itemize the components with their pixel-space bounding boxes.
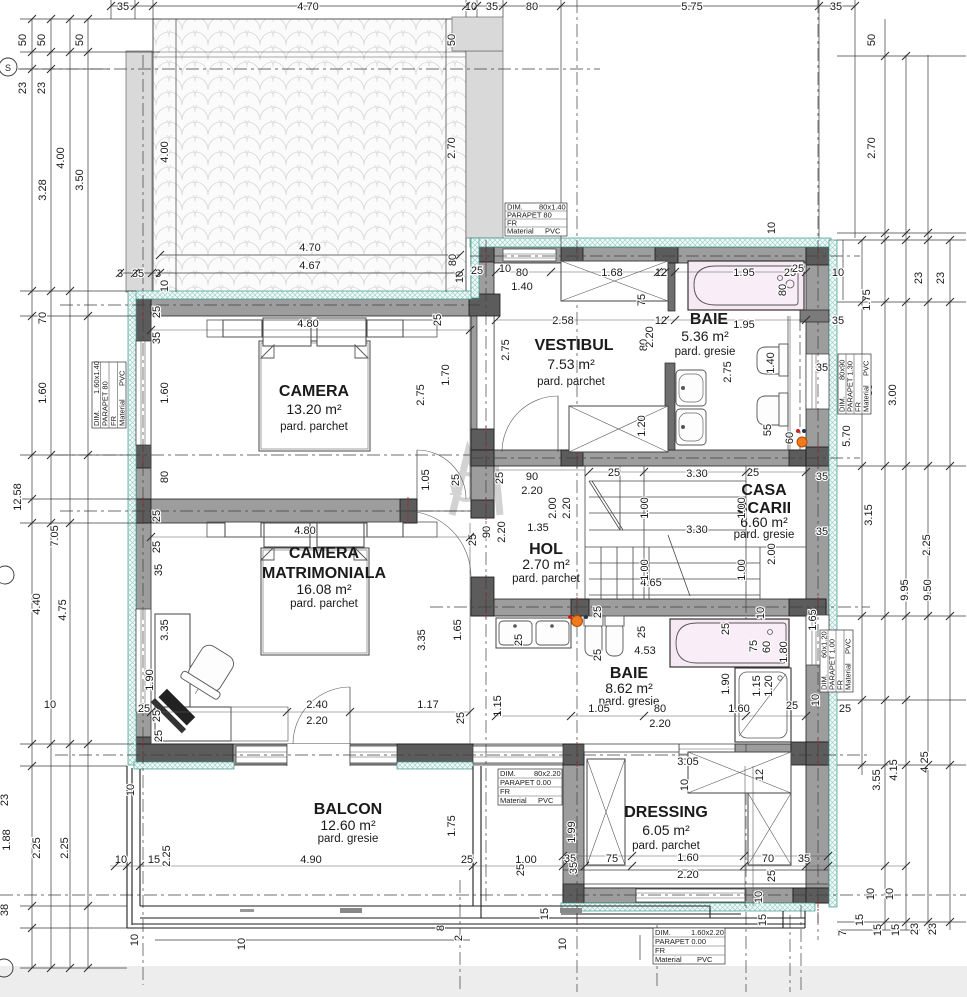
svg-text:PARAPET 0.00: PARAPET 0.00 [655,937,706,946]
svg-text:25: 25 [432,314,444,326]
svg-text:4.67: 4.67 [299,260,320,272]
svg-text:1.35: 1.35 [527,522,548,534]
svg-text:PARAPET 0.00: PARAPET 0.00 [500,778,551,787]
svg-text:Material: Material [507,227,534,236]
svg-text:2: 2 [453,935,465,941]
svg-text:3.05: 3.05 [677,756,698,768]
svg-text:12.60 m²: 12.60 m² [320,817,376,833]
svg-text:1.75: 1.75 [861,289,873,310]
svg-text:15: 15 [872,924,884,936]
svg-text:70: 70 [37,312,49,324]
svg-text:10: 10 [159,280,171,292]
svg-text:S: S [5,63,11,73]
svg-text:3.30: 3.30 [686,468,707,480]
svg-text:23: 23 [935,272,947,284]
svg-text:35: 35 [816,526,828,538]
svg-text:3.55: 3.55 [871,769,883,790]
svg-text:2.40: 2.40 [306,699,327,711]
svg-text:3.50: 3.50 [74,169,86,190]
svg-text:BAIE: BAIE [690,311,729,328]
svg-text:Material: Material [500,796,527,805]
svg-text:12: 12 [655,315,667,327]
svg-text:5.36 m²: 5.36 m² [681,328,729,344]
svg-text:25: 25 [151,541,163,553]
svg-text:10: 10 [810,694,822,706]
svg-text:23: 23 [909,923,921,935]
svg-text:2.20: 2.20 [306,715,327,727]
svg-text:BALCON: BALCON [314,801,382,818]
svg-text:8.62 m²: 8.62 m² [605,680,653,696]
svg-text:25: 25 [467,534,479,546]
svg-text:23: 23 [0,794,11,806]
svg-text:9.50: 9.50 [922,579,934,600]
svg-text:5.70: 5.70 [841,425,853,446]
svg-text:50: 50 [36,34,48,46]
svg-text:50: 50 [446,34,458,46]
svg-text:3: 3 [117,268,123,280]
svg-text:10: 10 [44,699,56,711]
svg-text:25: 25 [138,703,150,715]
svg-text:1.70: 1.70 [440,364,452,385]
svg-text:Material: Material [844,663,853,690]
svg-text:35: 35 [486,1,498,13]
svg-text:pard. parchet: pard. parchet [632,840,701,852]
svg-text:CAMERA: CAMERA [289,545,360,562]
svg-text:2.20: 2.20 [644,326,656,347]
svg-text:pard. gresie: pard. gresie [675,346,736,358]
svg-text:75: 75 [748,640,760,652]
svg-text:pard. parchet: pard. parchet [512,573,581,585]
svg-text:1.75: 1.75 [446,815,458,836]
svg-text:10: 10 [884,888,896,900]
svg-text:2.70 m²: 2.70 m² [522,556,570,572]
svg-text:7.53 m²: 7.53 m² [547,356,595,372]
svg-text:7.05: 7.05 [49,525,61,546]
svg-text:7: 7 [837,930,849,936]
svg-text:4.00: 4.00 [159,141,171,162]
svg-text:4.15: 4.15 [888,759,900,780]
svg-text:25: 25 [151,306,163,318]
svg-text:35: 35 [117,1,129,13]
svg-text:FR: FR [500,787,511,796]
svg-text:pard. gresie: pard. gresie [734,529,795,541]
svg-text:10: 10 [499,263,511,275]
svg-text:1.80: 1.80 [778,641,790,662]
svg-text:10: 10 [129,934,141,946]
svg-text:80: 80 [159,471,171,483]
svg-text:1.40: 1.40 [511,281,532,293]
svg-text:35: 35 [151,332,163,344]
svg-text:2.25: 2.25 [31,837,43,858]
svg-text:25: 25 [766,870,778,882]
svg-text:15: 15 [539,908,551,920]
svg-text:2.00: 2.00 [766,543,778,564]
svg-text:80x2.20: 80x2.20 [534,769,561,778]
svg-text:pard. parchet: pard. parchet [290,598,359,610]
svg-text:1.65: 1.65 [452,619,464,640]
svg-text:pard. parchet: pard. parchet [537,376,606,388]
svg-text:25: 25 [592,606,604,618]
svg-text:10: 10 [753,891,765,903]
svg-text:70: 70 [762,853,774,865]
svg-text:35: 35 [816,362,828,374]
svg-text:90: 90 [481,526,493,538]
svg-text:Material: Material [862,385,871,412]
svg-text:25: 25 [450,474,462,486]
svg-text:PVC: PVC [538,796,554,805]
svg-text:1.15: 1.15 [751,675,763,696]
svg-text:2.70: 2.70 [446,137,458,158]
svg-text:10: 10 [832,267,844,279]
svg-text:10: 10 [679,779,691,791]
svg-text:2.20: 2.20 [649,718,670,730]
svg-text:25: 25 [455,712,467,724]
svg-text:3.00: 3.00 [887,384,899,405]
svg-text:4.80: 4.80 [297,318,318,330]
svg-text:3.15: 3.15 [863,504,875,525]
svg-text:15: 15 [890,924,902,936]
svg-text:DIM.: DIM. [655,928,671,937]
svg-text:1.17: 1.17 [417,699,438,711]
svg-text:23: 23 [36,82,48,94]
svg-text:23: 23 [913,272,925,284]
svg-text:80: 80 [526,1,538,13]
svg-text:38: 38 [0,904,11,916]
svg-text:1.00: 1.00 [639,497,651,518]
svg-text:4.00: 4.00 [55,147,67,168]
svg-text:5.75: 5.75 [681,1,702,13]
svg-text:1.65: 1.65 [807,609,819,630]
svg-text:2.58: 2.58 [552,315,573,327]
svg-text:80: 80 [516,267,528,279]
svg-text:25: 25 [786,700,798,712]
svg-text:pard. parchet: pard. parchet [280,421,349,433]
svg-text:25: 25 [839,703,851,715]
svg-text:10: 10 [236,938,248,950]
svg-text:Material: Material [655,955,682,964]
svg-text:10: 10 [465,1,477,13]
svg-text:4.25: 4.25 [919,751,931,772]
svg-text:6.05 m²: 6.05 m² [642,822,690,838]
svg-text:35: 35 [568,862,580,874]
svg-text:90: 90 [526,471,538,483]
svg-text:80: 80 [777,284,789,296]
svg-text:3.35: 3.35 [159,619,171,640]
svg-text:35: 35 [830,1,842,13]
svg-text:10: 10 [557,938,569,950]
svg-text:VESTIBUL: VESTIBUL [534,337,613,354]
svg-text:2.25: 2.25 [161,845,173,866]
svg-text:60: 60 [784,432,796,444]
svg-text:1.05: 1.05 [588,703,609,715]
svg-text:1.95: 1.95 [733,319,754,331]
svg-text:1.00: 1.00 [639,559,651,580]
svg-text:1.20: 1.20 [636,415,648,436]
svg-text:25: 25 [151,710,163,722]
svg-text:1.00: 1.00 [736,559,748,580]
svg-text:4.53: 4.53 [634,645,655,657]
svg-text:1.05: 1.05 [420,469,432,490]
svg-text:25: 25 [636,626,648,638]
svg-text:2.20: 2.20 [521,485,542,497]
svg-text:16.08 m²: 16.08 m² [296,581,352,597]
svg-text:25: 25 [720,623,732,635]
svg-text:PVC: PVC [844,638,853,654]
svg-text:10: 10 [865,888,877,900]
svg-text:4.70: 4.70 [299,242,320,254]
svg-text:10: 10 [766,222,778,234]
svg-text:75: 75 [636,294,648,306]
svg-text:1.68: 1.68 [601,267,622,279]
svg-text:PVC: PVC [118,370,127,386]
svg-text:25: 25 [471,265,483,277]
svg-text:60: 60 [761,641,773,653]
svg-text:Material: Material [118,399,127,426]
svg-text:MATRIMONIALA: MATRIMONIALA [262,565,387,582]
svg-text:50: 50 [74,34,86,46]
svg-text:2.20: 2.20 [677,869,698,881]
svg-text:1.60x2.20: 1.60x2.20 [691,928,724,937]
svg-text:15: 15 [854,914,866,926]
svg-text:1.60: 1.60 [677,852,698,864]
svg-text:2.75: 2.75 [500,339,512,360]
svg-text:2.75: 2.75 [722,361,734,382]
svg-text:3.35: 3.35 [416,629,428,650]
svg-text:DRESSING: DRESSING [624,804,708,821]
svg-text:12: 12 [754,769,766,781]
svg-text:FR: FR [655,946,666,955]
svg-text:1.60: 1.60 [159,382,171,403]
svg-text:1.90: 1.90 [144,669,156,690]
svg-text:25: 25 [151,510,163,522]
svg-text:50: 50 [866,34,878,46]
svg-text:PVC: PVC [697,955,713,964]
svg-text:4.70: 4.70 [297,1,318,13]
svg-text:12.58: 12.58 [12,483,24,511]
svg-text:35: 35 [816,471,828,483]
svg-text:75: 75 [606,853,618,865]
svg-text:9.95: 9.95 [899,579,911,600]
svg-text:25: 25 [513,634,525,646]
svg-text:4.75: 4.75 [57,599,69,620]
svg-text:1.60: 1.60 [728,703,749,715]
svg-text:3.28: 3.28 [37,179,49,200]
svg-text:2.00: 2.00 [547,497,559,518]
svg-text:2.20: 2.20 [561,497,573,518]
svg-text:PVC: PVC [862,360,871,376]
svg-text:CAMERA: CAMERA [279,383,350,400]
svg-text:1.00: 1.00 [736,497,748,518]
svg-text:55: 55 [762,424,774,436]
svg-text:25: 25 [494,472,506,484]
svg-text:15: 15 [757,914,769,926]
svg-text:3.30: 3.30 [686,524,707,536]
svg-text:1.90: 1.90 [720,673,732,694]
svg-text:25: 25 [592,649,604,661]
svg-text:2.75: 2.75 [415,384,427,405]
svg-text:1.99: 1.99 [566,821,578,842]
svg-text:25: 25 [515,864,527,876]
svg-text:4.40: 4.40 [31,593,43,614]
svg-text:PVC: PVC [545,227,561,236]
svg-text:1.40: 1.40 [765,352,777,373]
svg-text:2.20: 2.20 [496,521,508,542]
svg-text:10: 10 [125,784,137,796]
svg-text:80: 80 [654,703,666,715]
svg-text:1.88: 1.88 [1,829,13,850]
svg-text:25: 25 [461,854,473,866]
svg-text:2.25: 2.25 [921,534,933,555]
svg-text:DIM.: DIM. [500,769,516,778]
svg-text:25: 25 [608,467,620,479]
svg-text:2.70: 2.70 [866,137,878,158]
svg-text:1.20: 1.20 [763,675,775,696]
svg-text:2.25: 2.25 [59,837,71,858]
svg-text:15: 15 [148,854,160,866]
svg-text:23: 23 [17,82,29,94]
svg-text:8: 8 [435,925,447,931]
svg-text:4.90: 4.90 [300,854,321,866]
svg-text:25: 25 [792,263,804,275]
svg-text:10: 10 [755,607,767,619]
svg-text:50: 50 [17,34,29,46]
svg-text:23: 23 [927,923,939,935]
svg-text:35: 35 [832,315,844,327]
svg-text:pard. gresie: pard. gresie [318,833,379,845]
svg-text:13.20 m²: 13.20 m² [286,401,342,417]
svg-text:1.60: 1.60 [37,382,49,403]
svg-text:35: 35 [153,564,165,576]
svg-text:CASA: CASA [741,482,787,499]
svg-text:80: 80 [447,254,459,266]
svg-text:25: 25 [153,730,165,742]
svg-text:1.95: 1.95 [733,267,754,279]
svg-text:4.80: 4.80 [294,525,315,537]
